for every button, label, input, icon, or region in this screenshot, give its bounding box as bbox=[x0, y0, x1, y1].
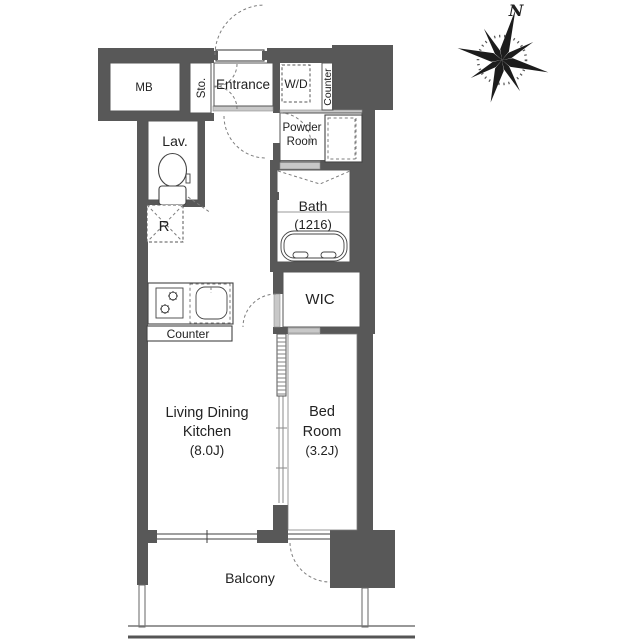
wall-segment bbox=[270, 170, 277, 268]
bedroom-size-label: (3.2J) bbox=[305, 443, 338, 458]
wall-segment bbox=[362, 110, 375, 162]
wall-segment bbox=[267, 48, 332, 63]
bath-label: Bath bbox=[299, 198, 328, 214]
bath-folding-door bbox=[278, 171, 350, 184]
balcony-structure bbox=[128, 585, 415, 637]
hall-door-swing bbox=[224, 116, 266, 158]
wall-segment bbox=[273, 63, 280, 113]
wall-segment bbox=[188, 113, 214, 121]
wall-segment bbox=[137, 530, 157, 543]
front-door-swing bbox=[215, 5, 265, 55]
kitchen-unit bbox=[148, 283, 233, 324]
wall-segment bbox=[270, 192, 279, 200]
entrance-step bbox=[213, 106, 273, 111]
wall-segment bbox=[98, 111, 188, 121]
mb-label: MB bbox=[135, 82, 153, 94]
balcony-post bbox=[139, 585, 145, 627]
sto-label: Sto. bbox=[196, 78, 208, 98]
wic-door-leaf bbox=[274, 294, 280, 327]
vanity-unit bbox=[325, 115, 362, 162]
wall-segment bbox=[98, 48, 110, 121]
bedroom-label: Bed bbox=[309, 404, 335, 420]
bedroom-top-partition bbox=[288, 328, 320, 333]
compass-north-label: N bbox=[508, 1, 525, 20]
refrigerator-label: R bbox=[159, 218, 170, 235]
wall-segment bbox=[350, 160, 375, 272]
wall-segment bbox=[357, 334, 373, 530]
floor-plan: MB Sto. Entrance W/D Counter Powder Room… bbox=[0, 0, 640, 639]
bath-outline bbox=[277, 170, 350, 262]
wall-segment bbox=[98, 48, 214, 63]
balcony-label: Balcony bbox=[225, 570, 275, 586]
compass-rose: N bbox=[446, 0, 562, 115]
wall-segment bbox=[330, 530, 395, 588]
wall-segment bbox=[360, 272, 375, 334]
wall-segment bbox=[273, 327, 288, 334]
wall-segment bbox=[273, 143, 280, 162]
kitchen-counter-label: Counter bbox=[167, 327, 210, 341]
powder-room-label: Powder bbox=[283, 122, 322, 134]
wall-segment bbox=[198, 121, 205, 207]
upper-counter-label: Counter bbox=[322, 68, 334, 106]
powder-room-label2: Room bbox=[287, 136, 318, 148]
balcony-post bbox=[362, 588, 368, 627]
balcony-door-swing bbox=[290, 543, 330, 582]
lav-label: Lav. bbox=[162, 133, 187, 149]
wic-door-swing bbox=[243, 294, 276, 327]
wall-segment bbox=[320, 327, 360, 334]
wall-segment bbox=[273, 272, 283, 294]
bathtub bbox=[281, 231, 347, 261]
wall-segment bbox=[137, 121, 148, 585]
front-door-sill bbox=[216, 50, 264, 61]
wall-segment bbox=[332, 45, 393, 110]
wall-segment bbox=[273, 505, 288, 530]
bedroom-label2: Room bbox=[303, 424, 342, 440]
ldk-label2: Kitchen bbox=[183, 424, 231, 440]
hatched-partition bbox=[277, 334, 286, 396]
wd-label: W/D bbox=[284, 77, 308, 91]
bath-size-label: (1216) bbox=[294, 217, 332, 232]
wic-label: WIC bbox=[305, 291, 334, 308]
wall-segment bbox=[180, 63, 190, 113]
wall-segment bbox=[257, 530, 288, 543]
ldk-label: Living Dining bbox=[165, 405, 248, 421]
front-door-hinge bbox=[262, 51, 267, 60]
ldk-size-label: (8.0J) bbox=[190, 443, 225, 458]
entrance-label: Entrance bbox=[216, 77, 270, 92]
